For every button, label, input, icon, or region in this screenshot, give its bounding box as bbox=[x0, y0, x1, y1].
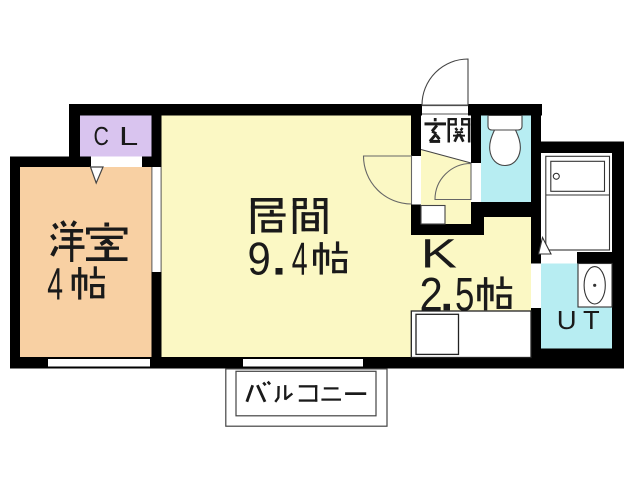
svg-text:U: U bbox=[557, 306, 577, 335]
svg-text:2: 2 bbox=[420, 269, 443, 321]
svg-text:L: L bbox=[119, 122, 138, 151]
svg-text:9: 9 bbox=[248, 234, 271, 285]
svg-text:T: T bbox=[583, 306, 600, 335]
svg-text:4: 4 bbox=[292, 234, 308, 286]
svg-text:C: C bbox=[94, 122, 109, 152]
svg-text:4: 4 bbox=[47, 259, 63, 309]
svg-text:5: 5 bbox=[455, 268, 474, 320]
